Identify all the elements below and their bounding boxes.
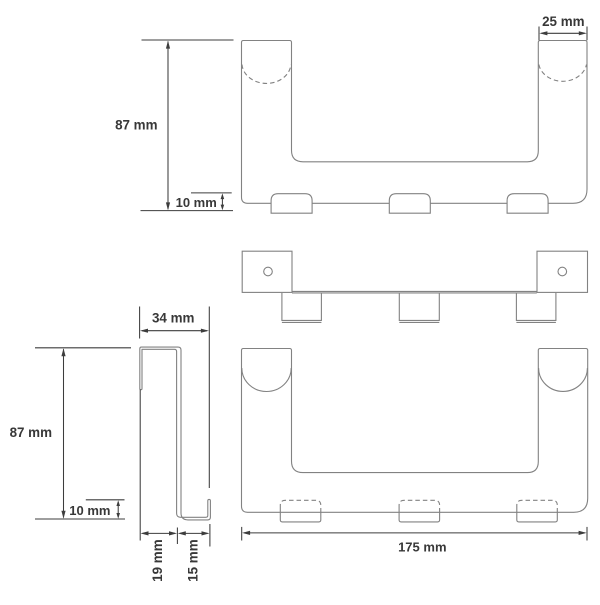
svg-text:175 mm: 175 mm xyxy=(398,540,446,555)
svg-text:34 mm: 34 mm xyxy=(152,310,195,325)
svg-text:15 mm: 15 mm xyxy=(185,539,200,582)
svg-text:10 mm: 10 mm xyxy=(69,503,110,518)
svg-text:25 mm: 25 mm xyxy=(542,14,585,29)
svg-text:87 mm: 87 mm xyxy=(115,118,158,133)
svg-text:19 mm: 19 mm xyxy=(150,539,165,582)
svg-text:87 mm: 87 mm xyxy=(10,425,53,440)
svg-text:10 mm: 10 mm xyxy=(176,195,217,210)
